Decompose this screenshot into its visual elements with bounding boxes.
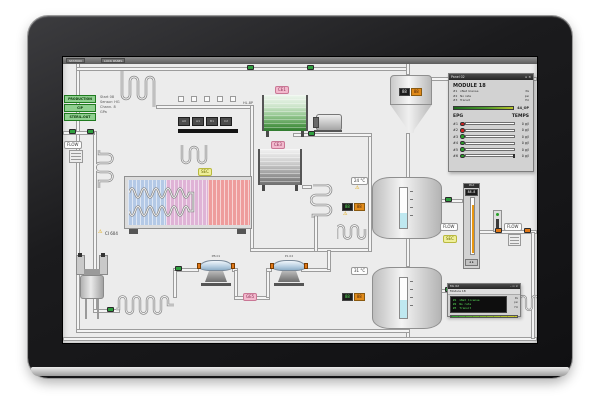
panel-title: Panel 02 [451,74,465,80]
status-dot [460,122,465,127]
pump-flange [231,263,235,269]
tag-ge5: GE5 [243,293,257,301]
valve-orange[interactable] [495,228,502,233]
epg-slider[interactable] [465,122,515,125]
tick [410,215,413,216]
tick [410,289,413,290]
ml-window-buttons[interactable]: – ▫ × [510,284,518,289]
pipe [250,248,372,252]
epg-header: EPG [453,114,463,119]
tank1-temp-label: 24 °C [351,177,368,185]
pipe-coil [116,293,174,317]
pipe [63,337,537,341]
tick [410,281,413,282]
status-dot [460,128,465,133]
indicator-square [204,96,210,102]
ml-gradient-bar [450,315,518,318]
indicator-square [178,96,184,102]
epg-slider[interactable] [465,142,515,145]
pump-flange [270,263,274,269]
status-dot [460,141,465,146]
tank-foot [129,229,138,234]
module-info-row: #3TransitHz [453,98,529,103]
monitor-bezel: STATION LOCK PANEL [28,16,572,378]
flow-indicator-mid[interactable]: FLOW [440,223,458,231]
tank1-level-fill [400,213,407,228]
status-dot [460,134,465,139]
module-progress-label: 44_OP [517,106,529,110]
valve-green[interactable] [307,65,314,70]
motor-pump [316,114,342,131]
tank1-display: 88 88 [342,203,365,211]
digital-readout: 88 [354,203,365,211]
clamp-notch [78,253,82,257]
pipe [327,250,331,270]
scada-screen: STATION LOCK PANEL [63,57,537,343]
valve-green[interactable] [107,307,114,312]
digital-readout: 88 [342,203,353,211]
status-led-green [496,213,499,216]
tank-section-red [208,180,250,225]
tag-ce3: CE3 [271,141,285,149]
pump-foot [274,283,304,286]
valve-green[interactable] [445,197,452,202]
pipe [406,237,410,267]
pump-foot [201,283,231,286]
tick [410,207,413,208]
mode-info-line: GPa [100,110,107,114]
app-titlebar: STATION LOCK PANEL [63,57,537,64]
mode-info-line: Sensor: HG [100,100,120,104]
pipe [156,105,252,109]
mode-button-steril[interactable]: STERIL.OUT [64,113,96,121]
digital-readout: 88 [411,88,422,96]
tank1-level-tube [399,187,408,229]
level-gauge: MAX 88.8 ◂ ▸ [463,183,480,269]
pipe-coil [96,150,116,188]
tag-sec-tank: SEC [198,168,212,176]
gray-heat-exchanger [258,149,302,185]
monitor-bottom-edge [31,367,569,376]
clamp-leg [97,299,99,319]
ml-status-window: ML 02 – ▫ × Module 18 #1xNet license #2N… [447,283,521,317]
warning-icon: ⚠ [98,230,102,235]
tick [410,199,413,200]
module-progress-bar [453,106,514,110]
status-dot [460,154,465,159]
flow-indicator-left[interactable]: FLOW [64,141,82,149]
clamp-notch [101,253,105,257]
tick [410,191,413,192]
tank2-display: 88 88 [342,293,365,301]
tank-foot [237,229,246,234]
gauge-title: MAX [464,184,479,188]
tank2-level-fill [400,300,407,318]
tag-sec-mid: SEC [443,235,457,243]
temps-header: TEMPS [512,114,529,119]
pipe [314,214,318,252]
epg-slider[interactable] [465,148,515,151]
digital-readout: 88 [354,293,365,301]
ml-body: #1xNet license #2No rate #3Transit Pa ps… [448,295,520,314]
pump-base [278,271,300,282]
valve-green[interactable] [175,266,182,271]
io-button-a0[interactable]: A0 [178,117,190,126]
titlebar-station-chip[interactable]: STATION [66,58,85,63]
hopper-display: 88 88 [399,88,422,96]
pipe-coil [310,184,336,218]
pump-base [205,271,227,282]
pipe [293,133,372,137]
io-button-a1[interactable]: A1 [192,117,204,126]
pipe-coil [120,71,158,107]
clamp-prong-right [99,255,108,275]
indicator-square [217,96,223,102]
status-bar-black [178,129,238,133]
mode-button-production[interactable]: PRODUCTION [64,95,96,103]
green-heat-exchanger [262,95,308,131]
digital-readout: 88 [342,293,353,301]
titlebar-lock-chip[interactable]: LOCK PANEL [101,58,125,63]
warning-icon: ⚠ [355,186,359,191]
pipe [76,329,410,333]
epg-slider[interactable] [465,129,515,132]
epg-row: #6 0 g/l [453,153,529,159]
pump-label: P1.02 [270,254,308,258]
ml-console: #1xNet license #2No rate #3Transit [450,296,507,313]
digital-readout: 88 [399,88,410,96]
radiator-icon [508,234,521,246]
valve-green[interactable] [69,129,76,134]
mode-info-line: Start 08 [100,95,114,99]
gauge-fill [472,205,474,253]
ml-units: Pa psi Hz [508,296,518,313]
epg-slider[interactable] [465,154,515,157]
tick [410,305,413,306]
clamp-leg [85,299,87,319]
indicator-square [230,96,236,102]
pump-dome [199,260,233,271]
gauge-tube [470,197,475,255]
pump-label: PB.01 [197,254,235,258]
io-button-c2[interactable]: C2 [220,117,232,126]
epg-slider[interactable] [465,135,515,138]
sensor-slot [496,219,499,228]
valve-green[interactable] [308,131,315,136]
io-button-b1[interactable]: B1 [206,117,218,126]
mode-button-cip[interactable]: CIP [64,104,96,112]
radiator-icon [69,150,83,163]
status-dot [460,147,465,152]
hopper-funnel [390,105,432,133]
gauge-arrow-buttons[interactable]: ◂ ▸ [465,259,478,266]
panel-window-buttons[interactable]: ▫ × [525,74,531,80]
tag-ce1: CE1 [275,86,289,94]
pipe [406,133,410,179]
tank-inner-coil [129,183,203,221]
flow-indicator-right[interactable]: FLOW [504,223,522,231]
tag-ci604: CI 604 [105,231,118,236]
module-panel-window: Panel 02 ▫ × MODULE 18 #1xNet licensePa … [448,73,534,172]
pump-2: P1.02 [270,254,308,290]
warning-icon: ⚠ [343,212,347,217]
ml-row: #3Transit [453,306,504,310]
pipe-tag-hl: HL.8P [243,101,253,105]
clamp-body [80,275,104,299]
valve-green[interactable] [247,65,254,70]
pump-flange [304,263,308,269]
mode-info-line: Chann. 8 [100,105,116,109]
tank2-level-tube [399,277,408,319]
pipe-coil [337,221,367,243]
tank2-temp-label: 31 °C [351,267,368,275]
motor-base [314,130,342,132]
indicator-square [191,96,197,102]
pipe [531,232,535,339]
motor-coupling [313,117,319,128]
gauge-readout: 88.8 [465,189,478,196]
pump-dome [272,260,306,271]
pump-flange [197,263,201,269]
valve-green[interactable] [87,129,94,134]
pump-1: PB.01 [197,254,235,290]
valve-orange[interactable] [524,228,531,233]
tick [410,297,413,298]
